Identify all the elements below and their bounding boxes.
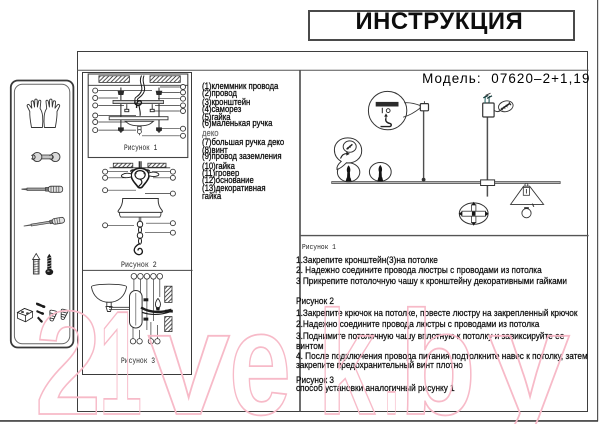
svg-text:k: k [318, 281, 375, 424]
svg-text:b: b [399, 281, 476, 424]
svg-text:1: 1 [99, 281, 142, 424]
svg-text:2: 2 [35, 281, 101, 424]
svg-text:v: v [148, 281, 230, 424]
svg-text:.: . [384, 281, 399, 424]
svg-text:e: e [229, 281, 291, 424]
svg-text:y: y [488, 281, 570, 424]
